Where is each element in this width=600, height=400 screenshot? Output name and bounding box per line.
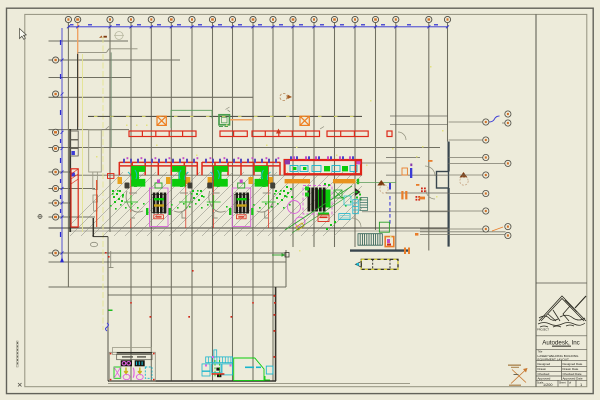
- svg-text:Title: Title: [538, 350, 543, 354]
- svg-text:of: of: [569, 381, 571, 384]
- svg-text:1/200: 1/200: [543, 383, 553, 387]
- svg-text:Sheet: Sheet: [559, 381, 566, 384]
- svg-text:Designed: Designed: [538, 362, 551, 366]
- svg-text:Approved Date: Approved Date: [563, 377, 583, 381]
- svg-text:Checked Date: Checked Date: [563, 372, 582, 376]
- svg-text:PROJECT: PROJECT: [537, 328, 550, 332]
- svg-text:Checked: Checked: [538, 372, 550, 376]
- svg-text:Drawn: Drawn: [538, 367, 547, 371]
- svg-text:Designed Date: Designed Date: [563, 362, 583, 366]
- svg-text:Autodesk, Inc: Autodesk, Inc: [542, 340, 580, 347]
- svg-text:Approved: Approved: [538, 377, 551, 381]
- svg-text:Drawn Date: Drawn Date: [563, 367, 579, 371]
